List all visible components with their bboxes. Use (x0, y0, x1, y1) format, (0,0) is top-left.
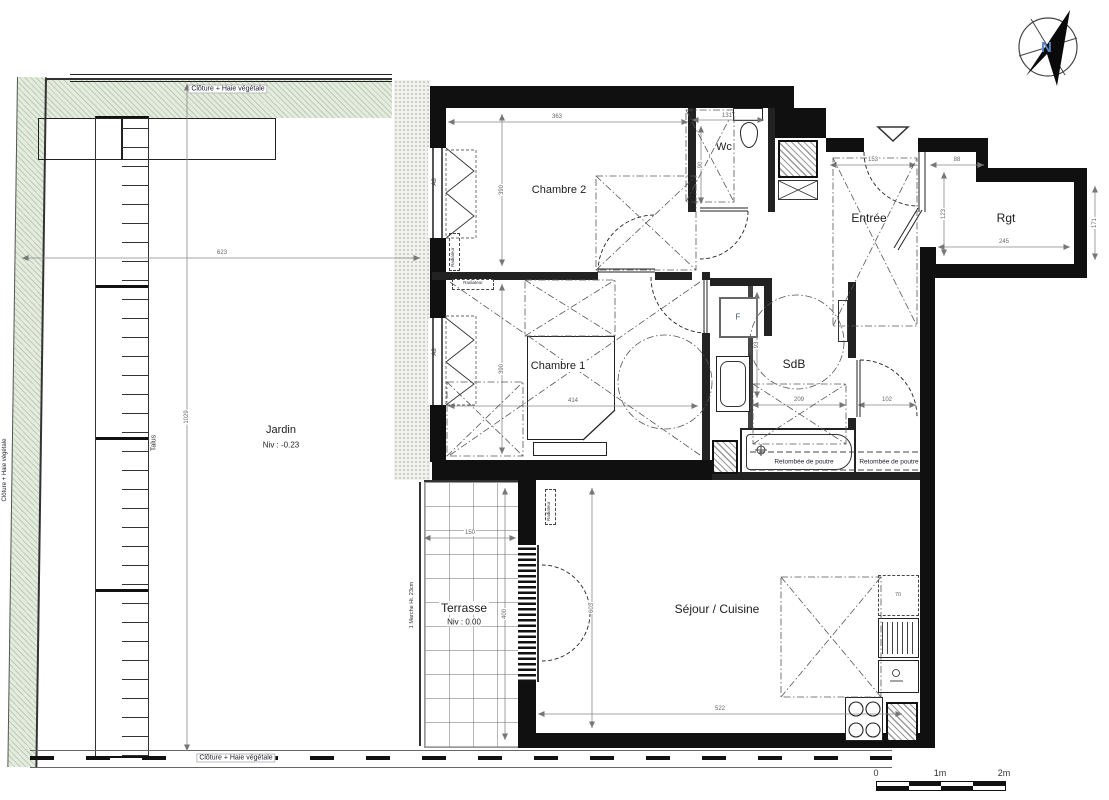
window-frame-line (432, 148, 434, 238)
duct-label: F (735, 313, 742, 322)
compass: N (1019, 10, 1077, 86)
hedge-band-left (7, 77, 47, 767)
scale-cell (973, 786, 1005, 790)
scale-cell (909, 786, 941, 790)
terrace-step-line (419, 482, 421, 746)
partition-segment (764, 278, 772, 336)
talus-rung (96, 285, 148, 288)
radiator-label: Radiateur (453, 280, 493, 285)
room-label-sdb: SdB (781, 357, 808, 371)
window-tag: A8 (432, 348, 438, 355)
washbasin-bowl (720, 361, 746, 407)
scale-tick-2m: 2m (997, 768, 1012, 778)
wall-segment (976, 168, 1087, 182)
partition-segment (768, 108, 775, 212)
window-chambre1 (428, 318, 448, 405)
talus-rung (96, 437, 148, 440)
terrace-label: Terrasse (439, 601, 489, 615)
radiator: Radiateur (449, 233, 460, 271)
wall-segment (920, 247, 936, 278)
room-label-entree: Entrée (851, 211, 886, 225)
partition-segment (710, 278, 768, 286)
dim-label: 603 (589, 602, 595, 614)
wall-segment (432, 460, 720, 480)
window-frame-line (441, 148, 443, 238)
toilet-bowl (740, 122, 758, 148)
dim-label: 245 (998, 239, 1010, 245)
scale-bar-graphic (876, 781, 1006, 791)
gravel-strip (394, 80, 430, 480)
fence-label-bottom: Clôture + Haie végétale (196, 754, 275, 763)
dim-label: 102 (881, 397, 893, 403)
room-label-rgt: Rgt (997, 211, 1016, 225)
dim-label: 623 (216, 250, 228, 256)
niche-frame (838, 300, 848, 342)
garden-planter (38, 118, 276, 160)
dim-label: 1029 (184, 409, 190, 424)
scale-cell (877, 786, 909, 790)
radiator: Radiateur (452, 279, 494, 290)
dim-label: 414 (567, 398, 579, 404)
bay-window (518, 545, 536, 682)
compass-north-letter: N (1041, 39, 1052, 56)
window-tag: A8 (432, 178, 438, 185)
wall-segment (770, 108, 826, 138)
window-chambre2 (428, 148, 448, 238)
bay-window-sill (537, 545, 539, 682)
wall-segment (518, 478, 536, 545)
kitchen-unit (878, 660, 919, 693)
wall-segment (1074, 182, 1087, 278)
dim-label: 131 (721, 113, 733, 119)
terrace-north-line (424, 480, 518, 482)
window-frame-line (432, 318, 434, 405)
dim-label: 390 (499, 363, 505, 375)
scale-tick-0: 0 (872, 768, 879, 778)
wall-segment (432, 86, 794, 108)
bathtub (740, 428, 856, 474)
radiator-label: Radiateur (450, 258, 455, 267)
shaft-kitchen (886, 702, 918, 742)
dim-label: 90 (698, 161, 704, 170)
fence-line-top (70, 74, 392, 82)
wall-segment (430, 405, 446, 462)
entry-marker (878, 127, 908, 141)
dim-label: 171 (1092, 217, 1098, 229)
dim-label: 123 (941, 208, 947, 220)
shaft-entry-box (778, 180, 818, 200)
floor-plan: Radiateur Radiateur Radiateur (0, 0, 1109, 800)
room-label-chambre2: Chambre 2 (532, 184, 586, 196)
partition-segment (688, 108, 696, 212)
room-label-sejour: Séjour / Cuisine (675, 602, 760, 616)
wall-segment (826, 138, 864, 152)
garden-level: Niv : -0.23 (263, 441, 299, 450)
kitchen-sink (878, 618, 919, 658)
shaft-entry (778, 140, 818, 178)
partition-segment (848, 282, 856, 358)
scale-tick-1m: 1m (933, 768, 948, 778)
partition-segment (702, 333, 710, 460)
dim-label: 93 (754, 341, 760, 350)
beam-label: Retombée de poutre (773, 459, 834, 466)
bed (527, 336, 615, 440)
talus-slope (95, 116, 149, 758)
radiator-label: Radiateur (546, 512, 551, 521)
fence-label-top: Clôture + Haie végétale (188, 85, 267, 94)
radiator: Radiateur (545, 489, 556, 525)
dim-label: 209 (793, 397, 805, 403)
dim-label: 363 (551, 114, 563, 120)
shaft-sdb (712, 440, 738, 474)
room-label-chambre1: Chambre 1 (529, 360, 587, 372)
dim-label: 153 (867, 157, 879, 163)
terrace-level: Niv : 0.00 (447, 618, 481, 627)
dim-label: 522 (714, 706, 726, 712)
talus-rung (96, 589, 148, 592)
wall-segment (920, 278, 935, 748)
garden-label: Jardin (266, 424, 296, 436)
wall-segment (430, 86, 446, 148)
wall-segment (518, 682, 536, 733)
washbasin (716, 356, 750, 412)
dim-label: 390 (499, 184, 505, 196)
wall-segment (934, 264, 1074, 278)
dim-label: 150 (464, 530, 476, 536)
cooktop (845, 697, 883, 741)
beam-label: Retombée de poutre (858, 459, 919, 466)
partition-segment (702, 272, 710, 280)
talus-label: Talus (151, 435, 158, 451)
window-frame-line (441, 318, 443, 405)
scale-cell (941, 786, 973, 790)
fence-line-bottom (30, 750, 892, 768)
fridge-label: 70 (894, 592, 902, 598)
room-label-wc: Wc (716, 141, 732, 153)
partition-segment (655, 272, 692, 280)
dim-label: 88 (953, 157, 962, 163)
dim-label: 400 (502, 608, 508, 620)
bed-bench (533, 442, 607, 456)
fence-label-left: Clôture + Haie végétale (2, 439, 8, 502)
step-label: 1 Marche Ht. 23cm (409, 582, 415, 628)
fence-dashes (30, 756, 892, 760)
wall-segment (918, 138, 988, 152)
toilet-tank (733, 108, 763, 121)
sink-drainer (882, 622, 915, 654)
